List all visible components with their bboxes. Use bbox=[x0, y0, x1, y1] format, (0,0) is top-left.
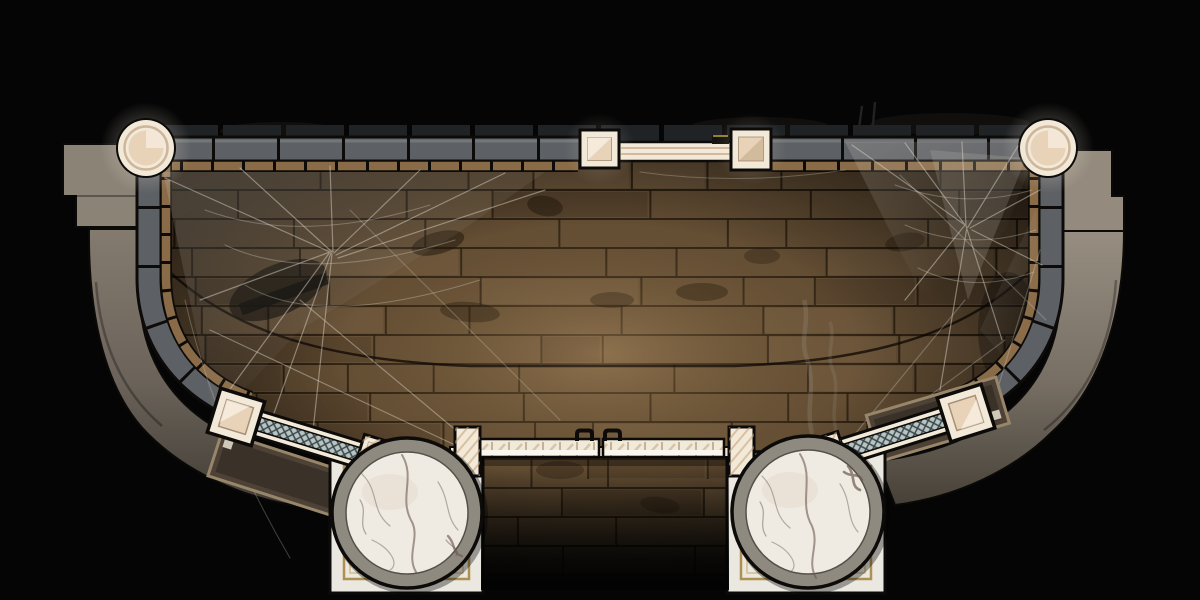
south-corridor-fade bbox=[481, 462, 729, 590]
battle-map bbox=[0, 0, 1200, 600]
gate-beam bbox=[619, 142, 732, 161]
battle-map-canvas bbox=[0, 0, 1200, 600]
pillar-marble-left bbox=[332, 438, 488, 594]
pillar-marble-right bbox=[732, 436, 890, 594]
gate-post-right bbox=[715, 113, 787, 185]
gate-post-left bbox=[564, 113, 636, 185]
